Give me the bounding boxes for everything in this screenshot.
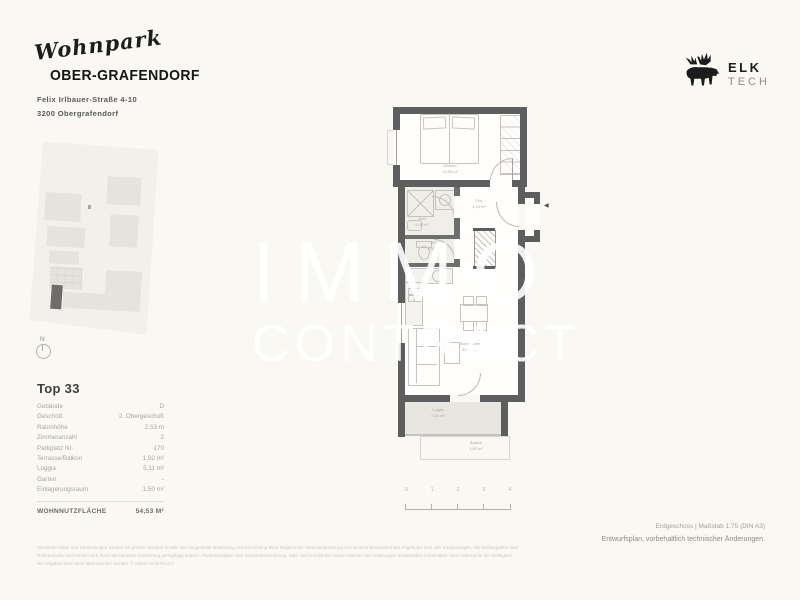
- plan-info: Erdgeschoss | Maßstab 1:75 (DIN A3): [656, 523, 765, 530]
- wall-segment: [398, 402, 405, 437]
- sofa-back-line: [416, 329, 417, 383]
- shower: [407, 190, 434, 217]
- door-leaf: [512, 158, 513, 180]
- sofa-cushion-line: [417, 364, 437, 365]
- table-row: Zimmeranzahl2: [37, 433, 164, 443]
- sofa: [408, 328, 440, 386]
- room-label-wohnkueche: Wohnküche 30,47 m²: [450, 341, 490, 352]
- row-label: Raumhöhe: [37, 423, 68, 433]
- plan-note: Entwurfsplan, vorbehaltlich technischer …: [602, 536, 765, 543]
- wall-segment: [398, 395, 450, 402]
- wall-segment: [473, 266, 495, 269]
- brand-logo: ELK TECH: [678, 48, 778, 100]
- room-label-wc: WC 1,60 m²: [420, 240, 448, 251]
- row-label: Geschoß: [37, 412, 63, 422]
- pillow: [423, 116, 447, 129]
- disclaimer-line: Sämtliche Pläne und Darstellungen wurden…: [37, 544, 542, 552]
- site-building: [47, 226, 86, 248]
- site-building: [109, 214, 139, 247]
- site-building: [49, 250, 80, 265]
- chair: [476, 296, 487, 306]
- site-building: [44, 192, 81, 222]
- sofa-cushion-line: [417, 346, 437, 347]
- wall-segment: [525, 236, 540, 242]
- table-row: Raumhöhe2,53 m: [37, 423, 164, 433]
- table-row: Geschoß2. Obergeschoß: [37, 412, 164, 422]
- floor-plan: ◀ Zimmer 13,95 m² Bad 4,08 m² WC 1,60 m²…: [368, 98, 558, 518]
- row-value: 2. Obergeschoß: [119, 412, 164, 422]
- disclaimer-line: der Angaben kann nicht übernommen werden…: [37, 560, 542, 568]
- wall-segment: [520, 107, 527, 187]
- wall-segment: [480, 395, 525, 402]
- storage-shaft: [474, 230, 496, 268]
- window-line: [396, 130, 397, 165]
- address-line-2: 3200 Obergrafendorf: [37, 109, 118, 118]
- dining-table: [460, 304, 488, 322]
- table-row: GebäudeD: [37, 402, 164, 412]
- chair: [463, 321, 474, 331]
- site-plan: [25, 135, 175, 365]
- entry-arrow-icon: ◀: [544, 202, 549, 209]
- total-label: WOHNNUTZFLÄCHE: [37, 508, 106, 515]
- row-value: 170: [153, 444, 164, 454]
- wall-segment: [518, 187, 525, 204]
- site-building: [106, 176, 141, 206]
- scale-bar-numbers: 0 1 2 3 4: [405, 487, 511, 493]
- wall-segment: [393, 107, 527, 114]
- chair: [463, 296, 474, 306]
- wall-segment: [405, 235, 454, 239]
- north-needle: [42, 345, 43, 351]
- north-label: N: [40, 336, 45, 343]
- row-value: 1,92 m²: [143, 454, 164, 464]
- kitchen-sink: [432, 270, 444, 282]
- logo-script-text: Wohnpark: [33, 25, 163, 65]
- door-opening: [534, 204, 540, 230]
- row-value: 5,11 m²: [143, 464, 164, 474]
- row-label: Terrasse/Balkon: [37, 454, 82, 464]
- table-row: Einlagerungsraum1,50 m²: [37, 485, 164, 495]
- row-value: 1,50 m²: [143, 485, 164, 495]
- room-label-bad: Bad 4,08 m²: [408, 216, 436, 227]
- row-label: Loggia: [37, 464, 56, 474]
- table-row: Garten-: [37, 475, 164, 485]
- row-label: Garten: [37, 475, 56, 485]
- door-opening: [454, 196, 460, 218]
- row-label: Parkplatz Nr.: [37, 444, 73, 454]
- room-label-flur: Flur 4,43 m²: [464, 198, 494, 209]
- window-line: [401, 303, 402, 343]
- site-building: [104, 270, 142, 312]
- room-label-balkon: Balkon 1,92 m²: [456, 440, 496, 451]
- room-label-zimmer: Zimmer 13,95 m²: [430, 163, 470, 174]
- row-value: 2,53 m: [145, 423, 164, 433]
- north-compass-icon: [36, 344, 51, 359]
- site-building: [63, 292, 108, 310]
- table-row: Parkplatz Nr.170: [37, 444, 164, 454]
- room-label-loggia: Loggia 5,11 m²: [418, 407, 458, 418]
- dimension-line: [387, 130, 388, 165]
- total-value: 54,53 M²: [136, 508, 164, 515]
- page: Wohnpark OBER-GRAFENDORF Felix Irlbauer-…: [0, 0, 800, 600]
- scale-bar-line: [405, 503, 511, 510]
- site-highlighted-unit: [50, 285, 63, 310]
- row-value: D: [159, 402, 164, 412]
- wall-segment: [405, 263, 454, 267]
- wall-segment: [398, 187, 405, 395]
- row-value: -: [162, 475, 164, 485]
- disclaimer-line: Rohbaumaße und können sich durch die bau…: [37, 552, 542, 560]
- elk-logo-icon: [678, 52, 726, 92]
- pillow: [452, 116, 476, 129]
- chair: [476, 321, 487, 331]
- unit-title: Top 33: [37, 381, 80, 396]
- row-label: Zimmeranzahl: [37, 433, 77, 443]
- table-row: Terrasse/Balkon1,92 m²: [37, 454, 164, 464]
- wall-segment: [501, 402, 508, 437]
- site-marker-dot: [88, 205, 91, 209]
- row-label: Einlagerungsraum: [37, 485, 88, 495]
- brand-sub: TECH: [728, 76, 770, 88]
- entry-floor: [525, 198, 534, 236]
- table-row: Loggia5,11 m²: [37, 464, 164, 474]
- hob-burner: [414, 288, 421, 295]
- table-total-row: WOHNNUTZFLÄCHE 54,53 M²: [37, 501, 164, 515]
- brand-name: ELK: [728, 60, 762, 75]
- wall-segment: [473, 228, 495, 231]
- unit-table: GebäudeD Geschoß2. Obergeschoß Raumhöhe2…: [37, 402, 164, 515]
- row-label: Gebäude: [37, 402, 63, 412]
- scale-bar: 0 1 2 3 4: [405, 487, 511, 509]
- door-opening: [490, 180, 512, 187]
- door-opening: [454, 239, 460, 259]
- wall-segment: [518, 230, 525, 395]
- hob-burner: [414, 295, 421, 302]
- row-value: 2: [160, 433, 164, 443]
- address-line-1: Felix Irlbauer-Straße 4-10: [37, 95, 137, 104]
- logo-project-name: OBER-GRAFENDORF: [50, 66, 200, 83]
